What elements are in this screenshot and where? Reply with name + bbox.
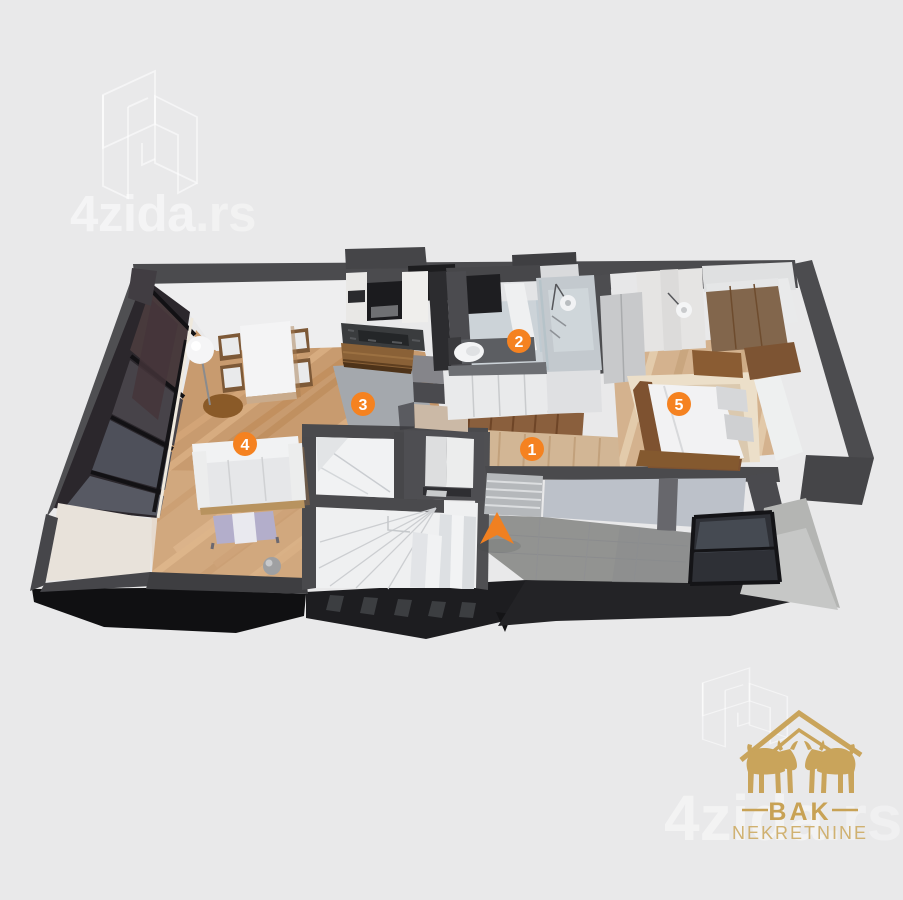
svg-text:5: 5	[675, 397, 684, 414]
svg-text:4zida.rs: 4zida.rs	[70, 185, 256, 242]
svg-text:4: 4	[241, 437, 250, 454]
svg-text:3: 3	[359, 397, 368, 414]
svg-text:1: 1	[528, 442, 537, 459]
svg-text:BAK: BAK	[768, 798, 831, 826]
svg-text:NEKRETNINE: NEKRETNINE	[732, 823, 868, 843]
svg-text:2: 2	[515, 334, 524, 351]
